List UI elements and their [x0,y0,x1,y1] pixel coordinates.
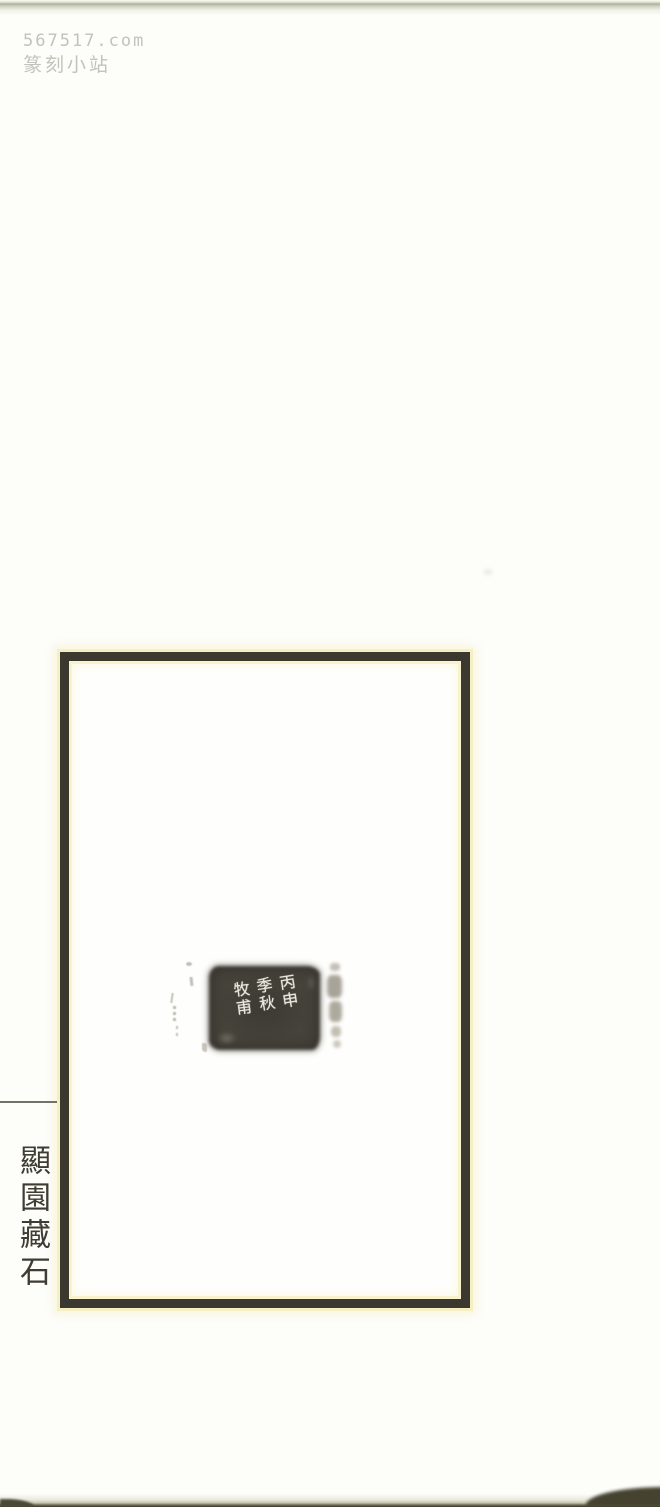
ink-bleedthrough-mark [330,963,340,971]
pencil-mark [176,1026,178,1040]
ink-bleedthrough-mark [327,975,342,998]
seal-column-left: 牧甫 [227,980,255,1019]
scan-bottom-edge-right-blob [586,1487,660,1507]
scan-bottom-edge [0,1494,660,1507]
side-caption-vertical: 顯園藏石 [12,1144,52,1300]
margin-fold-line [0,1101,57,1103]
watermark-site-url: 567517.com [23,31,145,51]
ink-bleedthrough-mark [329,1001,342,1022]
pencil-mark [173,1006,176,1022]
ink-bleedthrough-mark [331,1026,341,1037]
pencil-mark [202,1043,207,1052]
watermark: 567517.com 篆刻小站 [23,31,145,77]
watermark-site-name: 篆刻小站 [23,53,145,77]
faint-stain-spot [481,567,495,577]
scanned-book-page: 567517.com 篆刻小站 丙申 季秋 牧甫 顯園藏石 [0,0,660,1507]
seal-impression: 丙申 季秋 牧甫 [211,968,318,1048]
scan-top-edge [0,0,660,15]
pencil-mark [186,962,192,966]
ink-bleedthrough-mark [333,1040,341,1048]
